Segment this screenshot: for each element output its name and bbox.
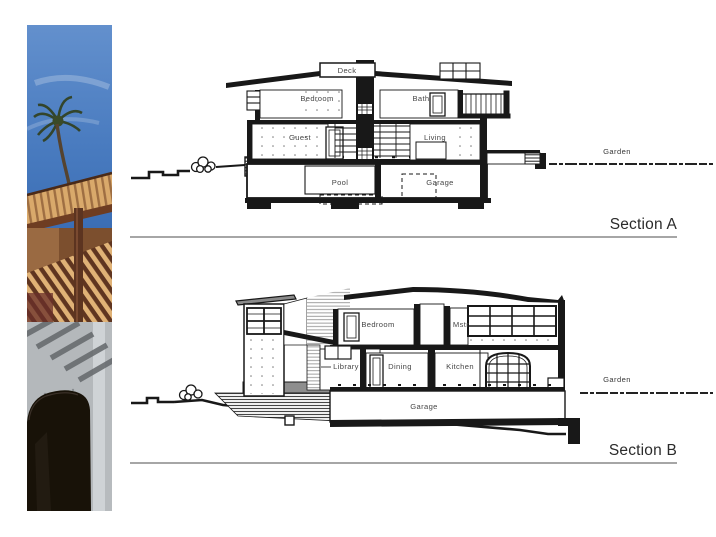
room-label-living: Living xyxy=(424,133,446,142)
clerestory xyxy=(440,63,480,79)
building-a xyxy=(226,60,546,209)
garage-room-b xyxy=(330,391,565,422)
master-window-grid xyxy=(468,306,556,336)
pergola-post xyxy=(74,208,83,322)
room-label-garage: Garage xyxy=(426,178,453,187)
main-floor-door xyxy=(326,127,343,159)
room-label-guest: Guest xyxy=(289,133,312,142)
room-label-dining: Dining xyxy=(388,362,412,371)
tower-windows xyxy=(247,308,281,334)
garden-label-b: Garden xyxy=(603,375,631,384)
terrain-left xyxy=(131,157,245,178)
photo-strip xyxy=(27,25,112,511)
room-label-bedroom-b: Bedroom xyxy=(361,320,394,329)
room-label-bath: Bath xyxy=(412,94,429,103)
main-roof xyxy=(344,287,565,303)
room-label-master: Mstr xyxy=(453,320,469,329)
room-label-deck: Deck xyxy=(338,66,357,75)
room-label-bedroom: Bedroom xyxy=(300,94,333,103)
terrace-wall xyxy=(487,150,546,169)
room-label-library: Library xyxy=(333,362,359,371)
palm-pergola-photo xyxy=(27,25,112,322)
room-label-pool: Pool xyxy=(332,178,349,187)
section-b-title: Section B xyxy=(609,442,677,459)
bush xyxy=(192,157,216,172)
arched-window xyxy=(486,353,530,390)
dining-door xyxy=(370,355,383,388)
bedroom-b-window xyxy=(344,313,359,341)
pergola xyxy=(27,173,112,322)
room-label-garage-b: Garage xyxy=(410,402,437,411)
bush-b xyxy=(180,385,203,400)
section-b-drawing: Bedroom Mstr Library Dining Kitchen Gara… xyxy=(128,284,716,470)
stair-window xyxy=(325,346,351,359)
room-label-kitchen: Kitchen xyxy=(446,362,474,371)
garden-label-a: Garden xyxy=(603,147,631,156)
right-footing-b xyxy=(558,418,580,444)
presentation-slide: Deck Bedroom Bath Guest Living Pool Gara… xyxy=(0,0,716,537)
roof-left xyxy=(226,71,320,88)
balcony xyxy=(458,91,510,118)
window-stack xyxy=(247,91,260,110)
concrete-arch-photo xyxy=(27,322,112,511)
bath-window xyxy=(430,93,445,116)
section-a-title: Section A xyxy=(610,216,678,233)
section-a-drawing: Deck Bedroom Bath Guest Living Pool Gara… xyxy=(128,54,716,246)
